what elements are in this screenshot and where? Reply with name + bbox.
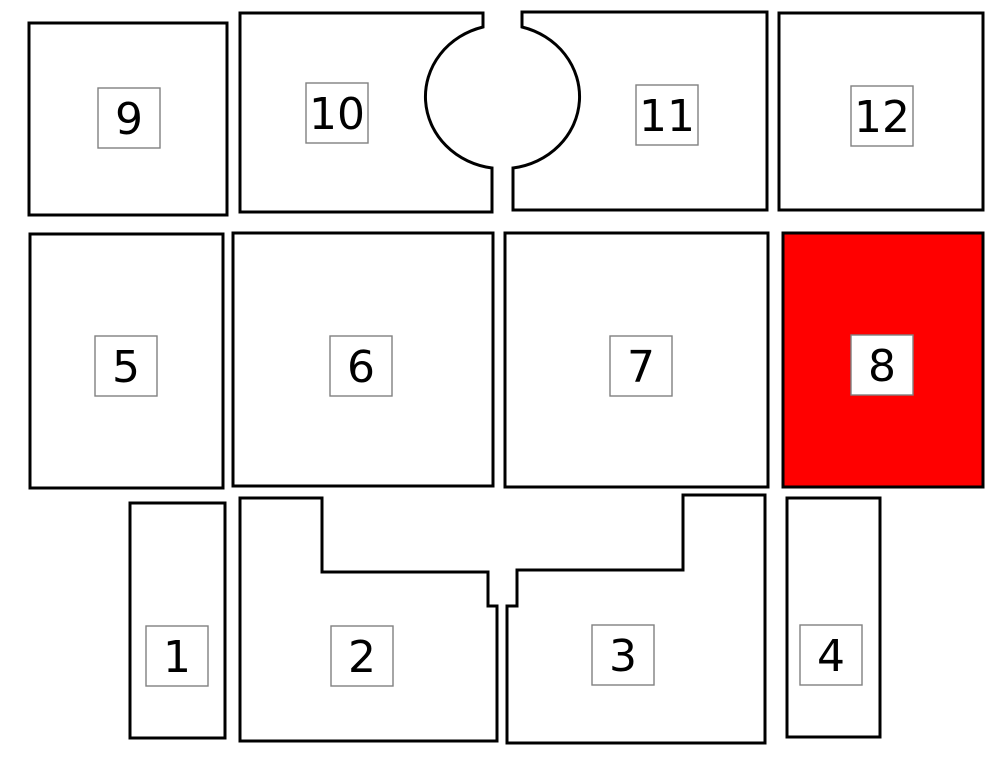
unit-12-number: 12	[854, 92, 910, 143]
unit-11: 11	[513, 12, 767, 210]
unit-8-highlighted: 8	[783, 233, 983, 487]
floor-plan: 9 10 11 12 5 6 7 8 1	[0, 0, 1000, 762]
unit-1: 1	[130, 503, 225, 738]
unit-2: 2	[240, 498, 497, 741]
unit-4-shape[interactable]	[787, 498, 880, 737]
unit-1-number: 1	[163, 632, 191, 683]
unit-10: 10	[240, 13, 492, 212]
unit-7-number: 7	[627, 342, 655, 393]
unit-2-shape[interactable]	[240, 498, 497, 741]
unit-9: 9	[29, 23, 227, 215]
unit-3-shape[interactable]	[507, 495, 765, 743]
unit-11-number: 11	[639, 91, 695, 142]
unit-9-number: 9	[115, 94, 143, 145]
unit-8-number: 8	[868, 341, 896, 392]
unit-5-number: 5	[112, 342, 140, 393]
unit-10-number: 10	[309, 89, 365, 140]
unit-3: 3	[507, 495, 765, 743]
unit-1-shape[interactable]	[130, 503, 225, 738]
unit-2-number: 2	[348, 632, 376, 683]
unit-4-number: 4	[817, 631, 845, 682]
unit-7: 7	[505, 233, 768, 487]
unit-6-number: 6	[347, 342, 375, 393]
floor-plan-canvas: 9 10 11 12 5 6 7 8 1	[0, 0, 1000, 762]
unit-12: 12	[779, 13, 983, 210]
unit-3-number: 3	[609, 631, 637, 682]
unit-6: 6	[233, 233, 493, 486]
unit-4: 4	[787, 498, 880, 737]
unit-5: 5	[30, 234, 223, 488]
